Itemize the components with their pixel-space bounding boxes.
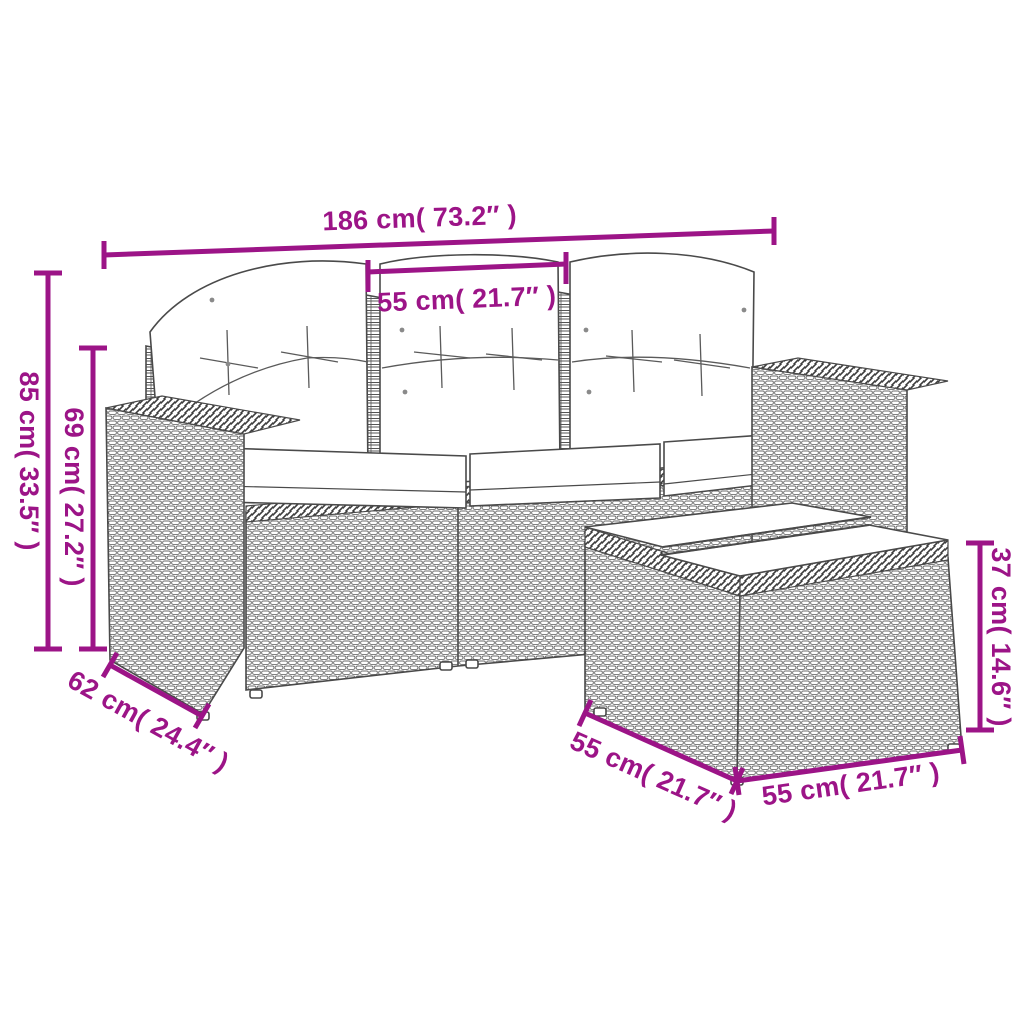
furniture-line-art: 186 cm( 73.2″ ) 55 cm( 21.7″ ) 85 cm( 33… <box>0 0 1024 1024</box>
seat-cushion <box>470 444 660 506</box>
sofa-foot <box>466 660 478 668</box>
sofa-left-armrest <box>106 408 244 714</box>
dimension-label-backrest-height: 69 cm( 27.2″ ) <box>59 407 89 586</box>
table-right-face <box>737 558 962 781</box>
dimension-sofa-height: 85 cm( 33.5″ ) <box>14 273 62 649</box>
dimension-line <box>104 231 774 255</box>
table-foot <box>594 708 606 716</box>
sofa-foot <box>250 690 262 698</box>
dimension-backrest-height: 69 cm( 27.2″ ) <box>59 348 107 649</box>
dimension-label-sofa-height: 85 cm( 33.5″ ) <box>14 371 44 550</box>
dimension-table-height: 37 cm( 14.6″ ) <box>966 543 1016 730</box>
dimension-label-table-height: 37 cm( 14.6″ ) <box>986 547 1016 726</box>
seat-cushion <box>222 448 466 508</box>
sofa-illustration <box>106 253 962 785</box>
sofa-foot <box>440 662 452 670</box>
dimension-label-sofa-width: 186 cm( 73.2″ ) <box>322 200 517 237</box>
product-dimension-diagram: 186 cm( 73.2″ ) 55 cm( 21.7″ ) 85 cm( 33… <box>0 0 1024 1024</box>
side-table <box>585 503 962 785</box>
